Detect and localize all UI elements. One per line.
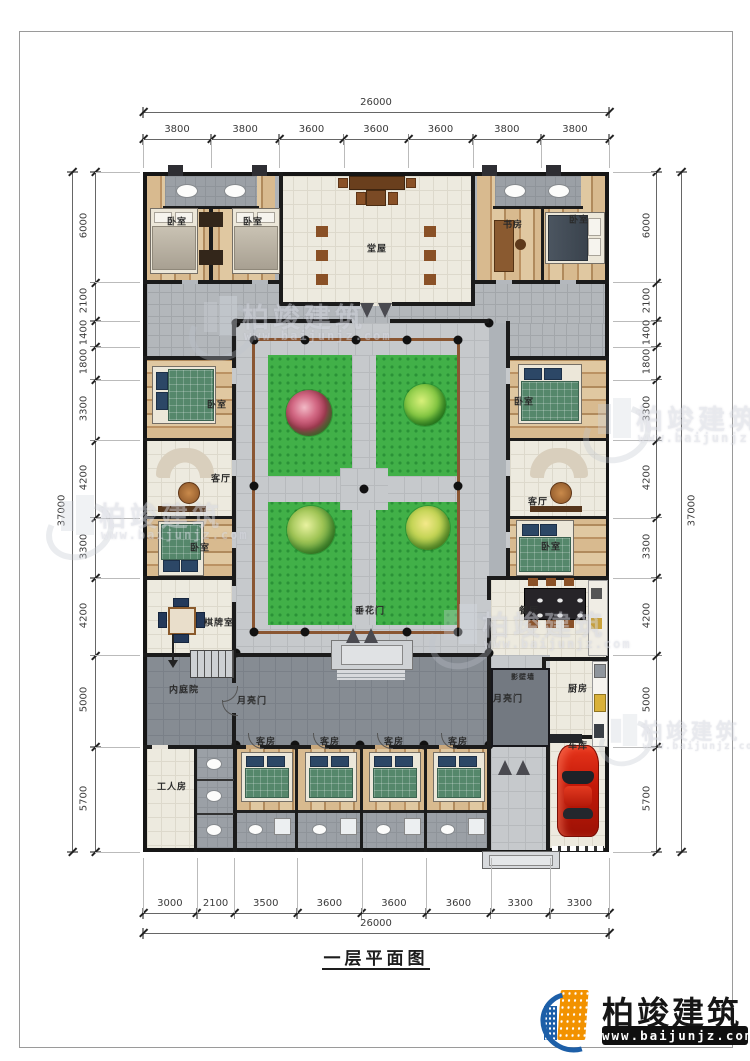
dim-label: 3300 <box>642 516 653 576</box>
dim-label: 5700 <box>642 768 653 828</box>
dim-line <box>143 913 609 914</box>
logo-website-text: www.baijunjz.com <box>602 1026 748 1045</box>
dim-ext <box>426 858 427 913</box>
dim-label: 3600 <box>428 898 488 909</box>
dimension-annotations: 3800380036003600360038003800260003000210… <box>0 0 750 1061</box>
dim-label: 6000 <box>79 196 90 256</box>
dim-label: 5700 <box>79 768 90 828</box>
dim-ext <box>95 347 140 348</box>
dim-label: 3300 <box>490 898 550 909</box>
dim-line <box>143 933 609 934</box>
dim-ext <box>613 655 656 656</box>
dim-label: 3600 <box>281 124 341 135</box>
dim-ext <box>95 578 140 579</box>
dim-label: 3800 <box>147 124 207 135</box>
dim-label: 4200 <box>79 585 90 645</box>
dim-label: 4200 <box>642 585 653 645</box>
dim-ext <box>297 858 298 913</box>
dim-label: 3800 <box>215 124 275 135</box>
dim-label: 3600 <box>364 898 424 909</box>
dim-label: 26000 <box>346 918 406 929</box>
plan-title-underline <box>322 968 430 970</box>
dim-ext <box>95 747 140 748</box>
dim-line <box>143 112 609 113</box>
dim-ext <box>613 747 656 748</box>
dim-line <box>681 172 682 852</box>
dim-label: 3300 <box>79 516 90 576</box>
dim-ext <box>541 139 542 168</box>
dim-ext <box>279 139 280 168</box>
dim-ext <box>613 440 656 441</box>
dim-ext <box>613 172 656 173</box>
dim-ext <box>609 139 610 168</box>
dim-label: 37000 <box>687 481 698 541</box>
logo-mark-icon <box>542 984 598 1046</box>
dim-line <box>656 172 657 852</box>
dim-ext <box>95 282 140 283</box>
dim-label: 5000 <box>642 670 653 730</box>
dim-label: 6000 <box>642 196 653 256</box>
dim-label: 4200 <box>642 447 653 507</box>
dim-ext <box>613 852 656 853</box>
dim-ext <box>408 139 409 168</box>
drawing-sheet: 卧室 卧室 堂屋 书房 卧室 卧室 客厅 卧室 棋牌室 卧室 客厅 卧室 餐厅 … <box>0 0 750 1061</box>
dim-ext <box>95 321 140 322</box>
dim-ext <box>344 139 345 168</box>
dim-line <box>72 172 73 852</box>
dim-label: 3300 <box>642 379 653 439</box>
dim-label: 3600 <box>346 124 406 135</box>
dim-ext <box>95 440 140 441</box>
dim-ext <box>362 858 363 913</box>
company-logo: 柏竣建筑 www.baijunjz.com <box>540 980 740 1050</box>
dim-label: 3800 <box>545 124 605 135</box>
dim-label: 4200 <box>79 447 90 507</box>
dim-ext <box>95 852 140 853</box>
dim-line <box>95 172 96 852</box>
dim-ext <box>95 172 140 173</box>
dim-label: 37000 <box>57 481 68 541</box>
dim-label: 3600 <box>411 124 471 135</box>
dim-label: 3800 <box>477 124 537 135</box>
dim-ext <box>211 139 212 168</box>
dim-label: 5000 <box>79 670 90 730</box>
dim-ext <box>473 139 474 168</box>
dim-ext <box>95 518 140 519</box>
dim-ext <box>613 578 656 579</box>
dim-label: 3300 <box>549 898 609 909</box>
dim-label: 26000 <box>346 97 406 108</box>
dim-label: 3500 <box>236 898 296 909</box>
dim-label: 3600 <box>299 898 359 909</box>
dim-label: 3300 <box>79 379 90 439</box>
plan-title: 一层平面图 <box>324 944 429 969</box>
dim-ext <box>143 139 144 168</box>
dim-ext <box>95 655 140 656</box>
dim-ext <box>95 380 140 381</box>
